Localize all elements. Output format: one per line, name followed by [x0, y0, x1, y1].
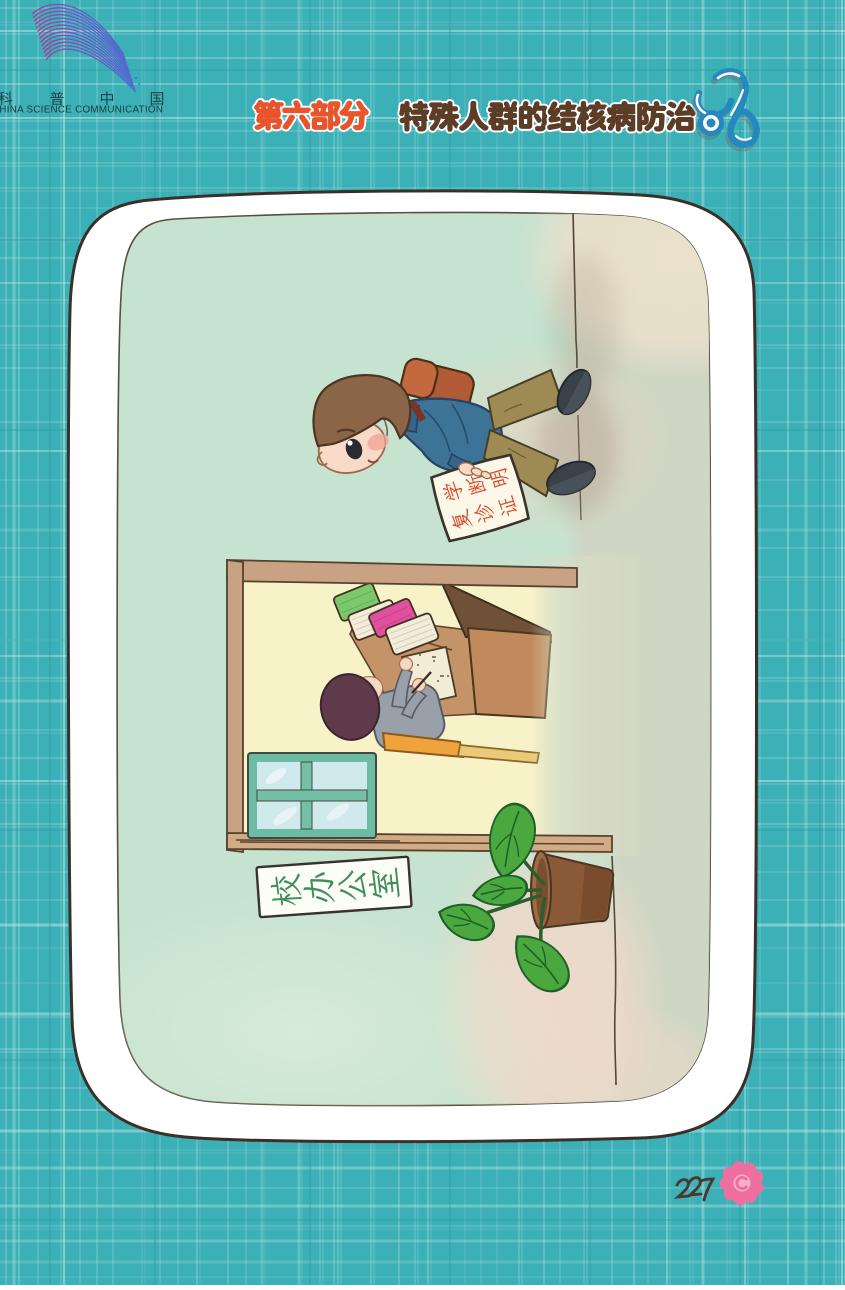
svg-text:CHINA SCIENCE COMMUNICATION: CHINA SCIENCE COMMUNICATION: [0, 105, 163, 116]
